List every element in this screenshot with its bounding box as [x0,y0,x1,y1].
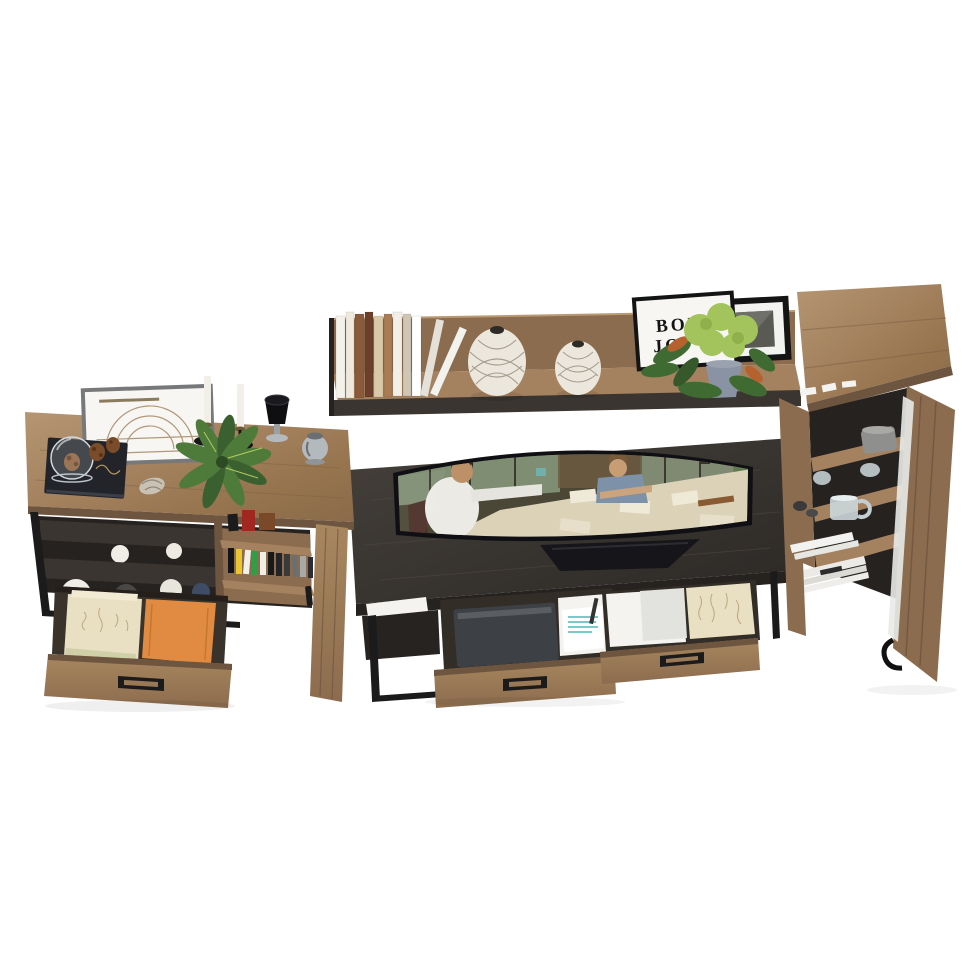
pinecone [106,437,120,453]
pinecone [89,443,105,461]
book-spine [374,316,383,397]
console [25,376,354,708]
media-case [252,551,258,575]
bloom [699,330,725,356]
cloche-dome [51,437,93,479]
glass-cup [860,463,880,477]
console-door-open [305,524,348,702]
shelf-left-cap [329,318,334,416]
product-render: BON JO [0,0,970,970]
media-case [300,556,306,577]
bin-rim [862,426,894,434]
vase-mouth [572,341,584,348]
book-spine [355,314,364,398]
vase-mouth [490,326,504,334]
beige-folders [64,590,142,662]
media-case [308,557,313,578]
book-spine [336,316,345,398]
glass-cloche [51,437,93,482]
media-case [260,552,266,575]
paper-card [562,606,604,652]
media-case [268,552,274,575]
pinecone-scale [92,447,96,451]
pinecone-scale [109,440,113,444]
book-spine [412,316,421,396]
media-case [228,548,234,573]
black-box [227,514,238,532]
pot-rim [706,360,742,368]
paper-grey [640,588,687,641]
tablet [453,602,559,667]
dark-cup [806,509,818,517]
text-line [568,626,598,628]
tall-cabinet [779,284,955,682]
media-case [284,554,290,576]
vase-body [555,341,601,395]
media-case [276,553,282,576]
text-line [568,631,592,633]
shadow [425,697,625,707]
furniture-scene-svg: BON JO [0,0,970,970]
head [609,459,627,477]
book-spine [365,312,373,397]
candle [237,384,244,428]
vase-base [305,459,325,465]
orange-folder [142,599,216,664]
glass-cup [813,471,831,485]
dark-cup [793,501,807,511]
decor-sphere [111,545,129,563]
vase-body [468,328,526,396]
mug-rim [831,495,857,501]
wall-shelf: BON JO [329,293,801,416]
door-panel [310,524,348,702]
folder-body [686,583,755,639]
console-drawer-open [44,586,232,708]
book-spine [393,312,402,396]
book-spine [403,314,411,396]
drawer-left-papers [558,594,608,656]
goblet-rim [265,395,289,405]
red-book [242,510,255,531]
plant-center [216,456,228,468]
tv-stand [348,430,798,708]
book-spine [346,312,354,398]
candle [204,376,211,424]
prop-teal [536,468,546,476]
shadow [45,700,235,712]
beige-folder [686,583,755,639]
drawer-right-open [600,580,760,684]
bloom-shade [700,318,712,330]
pinecone-scale [99,453,103,457]
shadow [867,685,957,695]
cabinet-lower-stile [785,556,806,636]
goblet-base [266,434,288,442]
cabinet-top [797,284,951,404]
book-spine [384,314,392,397]
brown-box [259,513,275,530]
vase-mouth [307,433,323,440]
bloom-shade [732,332,744,344]
drawer-left-open [434,588,616,708]
decor-sphere [166,543,182,559]
media-case [236,549,242,574]
